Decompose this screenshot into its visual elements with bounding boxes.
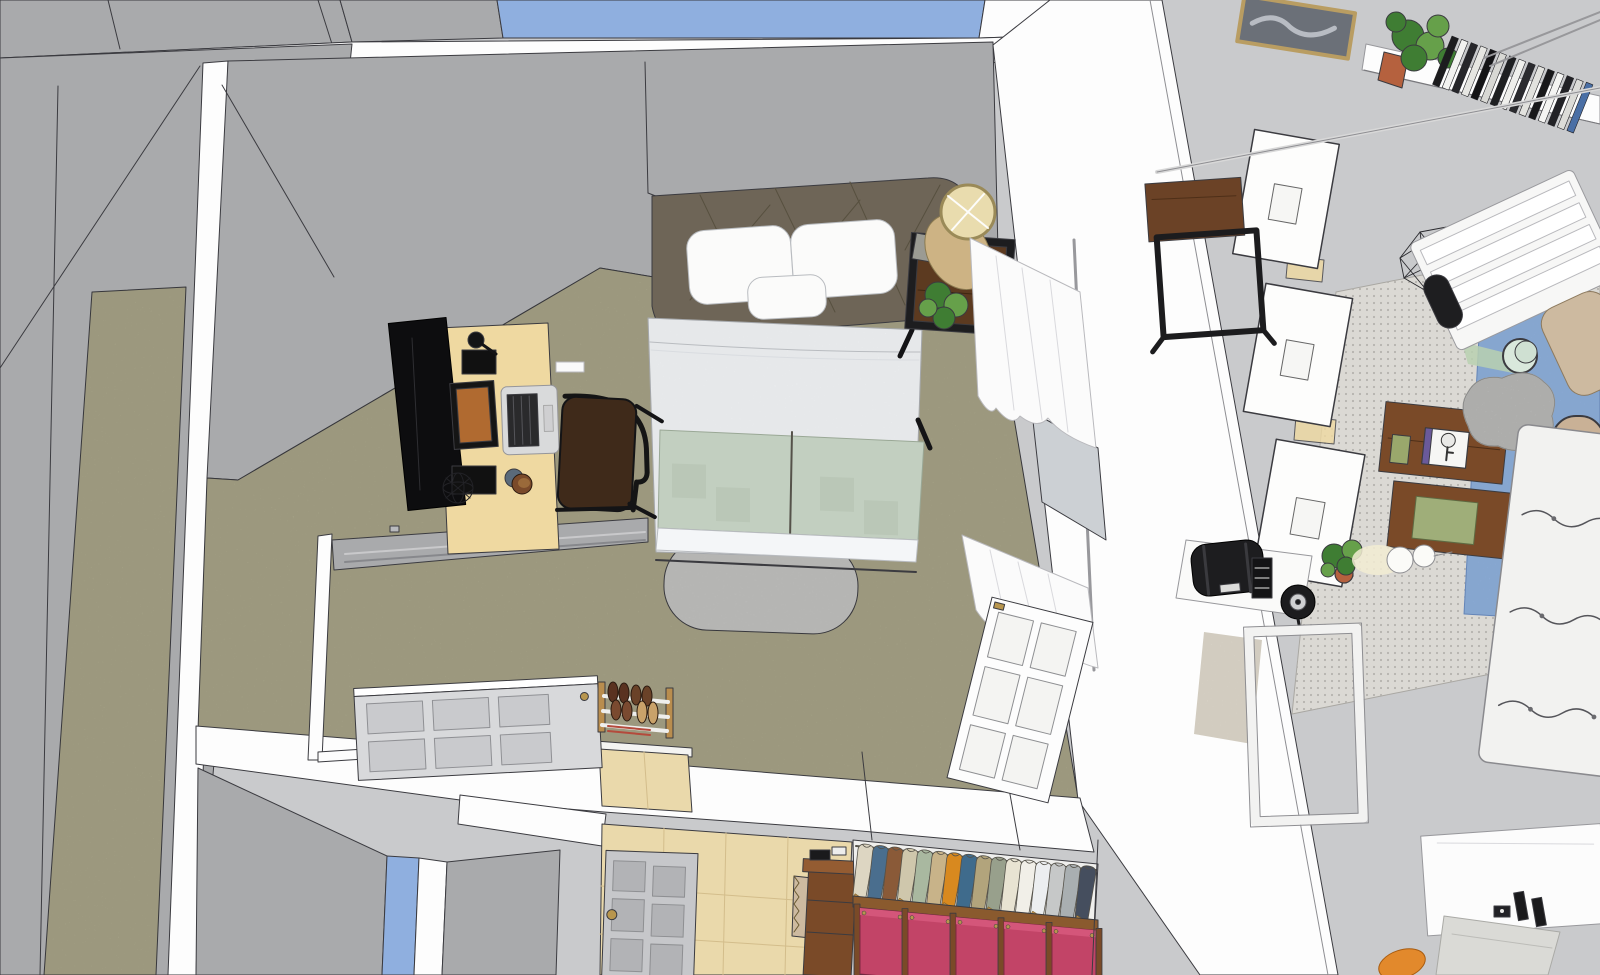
monitor-screen: [456, 387, 492, 443]
flat-door[interactable]: [354, 676, 602, 781]
paper: [556, 362, 584, 372]
hall-door[interactable]: [602, 850, 698, 975]
drawer-module[interactable]: [854, 904, 904, 975]
speaker-top: [462, 350, 496, 374]
pillow-small: [747, 274, 827, 320]
closet[interactable]: [851, 840, 1102, 975]
speaker-bottom: [452, 466, 496, 494]
drawer-module[interactable]: [998, 918, 1048, 975]
chest-item-white: [832, 847, 846, 855]
model-viewport[interactable]: [0, 0, 1600, 975]
wall-face-top-mid: [340, 0, 503, 42]
hall-wall-door-jamb: [442, 850, 560, 975]
flat-door-knob: [580, 692, 588, 700]
scene-svg[interactable]: [0, 0, 1600, 975]
hall-door-knob[interactable]: [607, 909, 617, 919]
window-top: [497, 0, 985, 38]
hall-wall-sliver: [414, 858, 447, 975]
dresser-green-pad: [1390, 434, 1411, 464]
window-bottom: [382, 856, 419, 975]
dresser-key-card: [1422, 428, 1470, 468]
laptop[interactable]: [501, 385, 559, 455]
drawer-module[interactable]: [902, 909, 952, 975]
drawer-module[interactable]: [950, 913, 1000, 975]
chest-item-dark: [810, 850, 830, 860]
